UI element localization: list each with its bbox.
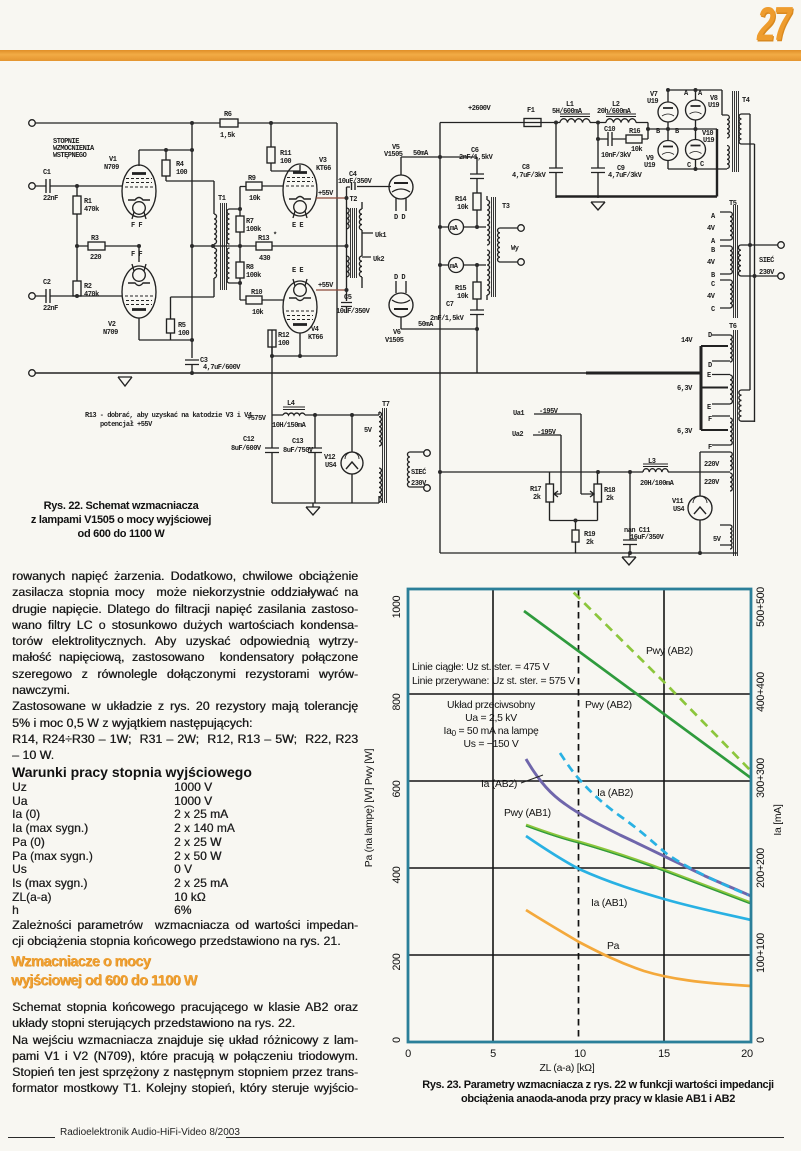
svg-text:T3: T3 [502,203,510,211]
svg-text:4,7uF/3kV: 4,7uF/3kV [512,172,547,180]
svg-text:10k: 10k [457,204,468,212]
svg-text:2nF/1,5kV: 2nF/1,5kV [430,315,465,323]
svg-text:400: 400 [391,866,403,883]
svg-text:0: 0 [391,1037,403,1043]
svg-text:100k: 100k [246,272,261,280]
svg-text:KT66: KT66 [308,334,323,342]
svg-text:100+100: 100+100 [755,933,767,973]
svg-text:V4: V4 [311,326,319,334]
svg-text:22nF: 22nF [43,305,58,313]
svg-text:2nF/1,5kV: 2nF/1,5kV [459,154,494,162]
svg-text:R11: R11 [280,150,291,158]
svg-text:22nF: 22nF [43,195,58,203]
svg-text:D: D [708,362,712,370]
svg-text:U19: U19 [647,98,658,106]
svg-text:R19: R19 [584,531,595,539]
svg-text:6,3V: 6,3V [677,428,693,436]
svg-text:D D: D D [394,274,405,282]
svg-text:5V: 5V [713,536,722,544]
svg-text:T7: T7 [382,401,390,409]
svg-text:20H/100mA: 20H/100mA [640,480,675,488]
svg-text:8uF/600V: 8uF/600V [231,445,262,453]
svg-text:230V: 230V [759,269,775,277]
svg-text:4,7uF/3kV: 4,7uF/3kV [608,172,643,180]
svg-text:U19: U19 [703,137,714,145]
svg-text:0: 0 [405,1048,411,1060]
svg-text:D: D [708,332,712,340]
svg-text:100: 100 [278,340,289,348]
svg-text:230V: 230V [411,480,427,488]
svg-text:R7: R7 [246,218,254,226]
svg-text:4V: 4V [707,259,716,267]
svg-text:C13: C13 [292,438,303,446]
svg-text:L4: L4 [287,400,295,408]
svg-text:Linie przerywane: Uz st. ster.: Linie przerywane: Uz st. ster. = 575 V [412,676,575,687]
svg-text:R4: R4 [176,161,184,169]
svg-text:KT66: KT66 [316,165,331,173]
svg-text:mA: mA [450,263,459,271]
svg-text:10k: 10k [252,309,263,317]
svg-text:R18: R18 [604,487,615,495]
svg-text:C: C [700,161,704,169]
svg-text:+575V: +575V [247,415,267,423]
svg-text:*: * [273,232,277,240]
svg-text:N709: N709 [104,164,119,172]
svg-text:R9: R9 [248,175,256,183]
svg-text:10uF/350V: 10uF/350V [338,178,373,186]
svg-text:V2: V2 [108,321,116,329]
svg-text:4,7uF/600V: 4,7uF/600V [203,364,241,372]
svg-text:V1: V1 [109,156,117,164]
svg-text:430: 430 [259,255,270,263]
svg-text:15: 15 [658,1048,670,1060]
svg-text:R12: R12 [278,332,289,340]
svg-text:F F: F F [131,222,142,230]
svg-text:220: 220 [90,254,101,262]
svg-text:5V: 5V [364,427,373,435]
svg-text:R10: R10 [251,289,262,297]
svg-text:800: 800 [391,693,403,710]
svg-text:600: 600 [391,780,403,797]
svg-text:A: A [698,90,703,98]
svg-text:R17: R17 [530,486,541,494]
svg-text:100k: 100k [246,226,261,234]
svg-text:A: A [684,90,689,98]
svg-text:A: A [711,213,716,221]
svg-text:L3: L3 [648,458,656,466]
svg-text:10uF/350V: 10uF/350V [336,308,371,316]
svg-text:Us = −150 V: Us = −150 V [463,739,518,750]
svg-text:F: F [708,416,712,424]
svg-text:10: 10 [574,1048,586,1060]
svg-text:SIEĆ: SIEĆ [759,255,774,265]
svg-text:20h/600mA: 20h/600mA [597,108,632,116]
svg-text:R5: R5 [178,322,186,330]
svg-text:US4: US4 [673,506,684,514]
svg-text:2k: 2k [606,495,614,503]
svg-text:300+300: 300+300 [755,758,767,798]
svg-text:6,3V: 6,3V [677,385,693,393]
svg-text:Ia (AB2): Ia (AB2) [597,788,633,799]
svg-text:-195V: -195V [539,408,559,416]
svg-text:Ia0 = 50 mA na lampę: Ia0 = 50 mA na lampę [443,726,539,738]
svg-text:10k: 10k [249,195,260,203]
svg-text:4V: 4V [707,293,716,301]
svg-text:Pa: Pa [607,941,620,952]
svg-text:50mA: 50mA [413,150,429,158]
svg-text:B: B [711,247,716,255]
svg-text:400+400: 400+400 [755,672,767,712]
svg-text:100: 100 [176,169,187,177]
svg-text:R1: R1 [84,198,92,206]
svg-text:500+500: 500+500 [755,587,767,627]
svg-text:5: 5 [490,1048,496,1060]
svg-text:C2: C2 [43,279,51,287]
svg-text:C: C [711,306,715,314]
svg-text:10k: 10k [457,293,468,301]
svg-text:C8: C8 [522,164,530,172]
svg-text:Ua2: Ua2 [512,431,523,439]
svg-text:E E: E E [292,267,303,275]
svg-text:100: 100 [280,158,291,166]
svg-text:Pwy (AB2): Pwy (AB2) [585,700,632,711]
svg-text:200: 200 [391,953,403,970]
svg-text:mA: mA [450,225,459,233]
svg-text:B: B [711,272,716,280]
svg-text:100: 100 [178,330,189,338]
svg-text:R15: R15 [455,285,466,293]
svg-text:T1: T1 [218,195,226,203]
svg-text:Pwy (AB1): Pwy (AB1) [504,808,551,819]
svg-text:Pa (na lampę) [W] Pwy [W]: Pa (na lampę) [W] Pwy [W] [364,748,375,867]
svg-text:R6: R6 [224,111,232,119]
svg-text:8uF/750V: 8uF/750V [283,447,314,455]
svg-text:200+200: 200+200 [755,848,767,888]
svg-text:0: 0 [755,1037,767,1043]
svg-text:C: C [687,162,691,170]
svg-text:20: 20 [741,1048,753,1060]
svg-text:470k: 470k [84,206,99,214]
svg-text:470k: 470k [84,291,99,299]
svg-text:2k: 2k [586,539,594,547]
svg-text:14V: 14V [681,337,693,345]
svg-text:ZL (a-a) [kΩ]: ZL (a-a) [kΩ] [540,1063,595,1074]
svg-text:Ia (AB2): Ia (AB2) [481,779,517,790]
svg-text:T6: T6 [729,323,737,331]
svg-text:Wy: Wy [511,245,520,253]
svg-text:WSTĘPNEGO: WSTĘPNEGO [53,152,87,160]
svg-text:5H/600mA: 5H/600mA [552,108,583,116]
svg-text:T5: T5 [729,200,737,208]
svg-text:Uk2: Uk2 [373,256,384,264]
svg-text:10k: 10k [631,146,642,154]
svg-text:Układ przeciwsobny: Układ przeciwsobny [447,700,536,711]
svg-text:E E: E E [292,222,303,230]
svg-text:E: E [707,404,711,412]
svg-text:+55V: +55V [318,190,334,198]
svg-text:C5: C5 [344,294,352,302]
svg-text:1000: 1000 [391,595,403,618]
svg-text:C10: C10 [604,126,615,134]
svg-text:T2: T2 [350,196,358,204]
svg-text:C1: C1 [43,169,51,177]
svg-text:C7: C7 [446,301,454,309]
svg-text:V12: V12 [324,454,335,462]
svg-text:US4: US4 [325,462,336,470]
svg-text:F1: F1 [527,107,535,115]
svg-text:1,5k: 1,5k [220,132,235,140]
svg-text:R2: R2 [84,283,92,291]
svg-text:R13 - dobrać, aby uzyskać na k: R13 - dobrać, aby uzyskać na katodzie V3… [85,412,252,420]
svg-text:V3: V3 [319,157,327,165]
svg-text:F F: F F [131,251,142,259]
svg-text:N709: N709 [103,329,118,337]
svg-text:SIEĆ: SIEĆ [411,467,426,477]
svg-text:U19: U19 [644,162,655,170]
svg-text:F: F [708,444,712,452]
svg-text:U19: U19 [708,102,719,110]
svg-text:Ua = 2,5 kV: Ua = 2,5 kV [465,713,517,724]
svg-text:D D: D D [394,214,405,222]
svg-text:2k: 2k [533,494,541,502]
svg-text:4V: 4V [707,225,716,233]
svg-text:10nF/3kV: 10nF/3kV [601,152,632,160]
svg-text:Ua1: Ua1 [513,410,524,418]
svg-text:Ia (AB1): Ia (AB1) [591,898,627,909]
svg-text:V1505: V1505 [385,337,404,345]
svg-text:R13: R13 [258,235,269,243]
svg-text:T4: T4 [742,97,750,105]
svg-text:R14: R14 [455,196,466,204]
svg-text:V11: V11 [672,498,683,506]
svg-text:Pwy (AB2): Pwy (AB2) [646,646,693,657]
svg-text:A: A [711,238,716,246]
svg-text:Ia [mA]: Ia [mA] [773,804,784,836]
svg-text:V6: V6 [393,329,401,337]
svg-text:220V: 220V [704,461,720,469]
svg-text:R8: R8 [246,264,254,272]
svg-text:R3: R3 [91,235,99,243]
svg-text:-195V: -195V [537,429,557,437]
svg-text:V1505: V1505 [384,151,403,159]
svg-text:potencjał +55V: potencjał +55V [100,421,153,429]
svg-text:10H/150mA: 10H/150mA [272,422,307,430]
svg-text:16uF/350V: 16uF/350V [630,534,665,542]
svg-text:R16: R16 [629,128,640,136]
svg-text:Linie ciągłe: Uz st. ster. = 4: Linie ciągłe: Uz st. ster. = 475 V [412,662,550,673]
svg-text:Uk1: Uk1 [375,232,386,240]
svg-text:220V: 220V [704,479,720,487]
svg-text:+55V: +55V [318,282,334,290]
svg-text:C: C [711,281,715,289]
svg-text:E: E [707,372,711,380]
svg-text:C12: C12 [243,436,254,444]
svg-text:+2600V: +2600V [468,105,492,113]
